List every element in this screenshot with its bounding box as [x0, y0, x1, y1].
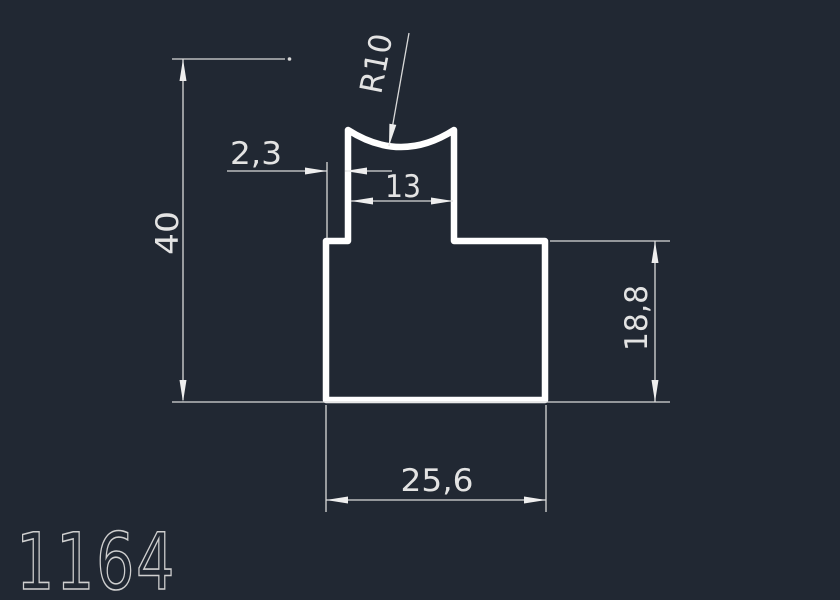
arrowhead-down-icon — [652, 380, 659, 402]
leader-radius: R10 — [354, 31, 409, 146]
cad-drawing-svg: 40 2,3 13 18,8 — [0, 0, 840, 600]
arrowhead-right-icon — [431, 198, 453, 205]
dim-body-height-label: 18,8 — [619, 285, 655, 351]
dim-neck-width-label: 13 — [385, 169, 421, 205]
extension-end-dot — [288, 57, 292, 61]
part-number: 1164 — [16, 518, 176, 600]
dim-overall-width: 25,6 — [326, 405, 546, 512]
arrowhead-left-icon — [326, 497, 348, 504]
arrowhead-right-icon — [524, 497, 546, 504]
dim-neck-width: 13 — [351, 169, 453, 205]
dim-step-width: 2,3 — [227, 136, 392, 238]
arrowhead-down-icon — [180, 380, 187, 402]
arrowhead-down-left-icon — [389, 124, 396, 146]
arrowhead-up-icon — [180, 59, 187, 81]
dim-body-height: 18,8 — [550, 241, 670, 402]
dim-overall-width-label: 25,6 — [401, 463, 474, 499]
cad-canvas: 40 2,3 13 18,8 — [0, 0, 840, 600]
arrowhead-up-icon — [652, 241, 659, 263]
dim-step-width-label: 2,3 — [230, 136, 282, 172]
arrowhead-right-icon — [305, 168, 327, 175]
arrowhead-left-icon — [351, 198, 373, 205]
dim-overall-height: 40 — [150, 57, 291, 402]
dim-radius-label: R10 — [354, 31, 401, 97]
dim-overall-height-label: 40 — [150, 211, 186, 255]
